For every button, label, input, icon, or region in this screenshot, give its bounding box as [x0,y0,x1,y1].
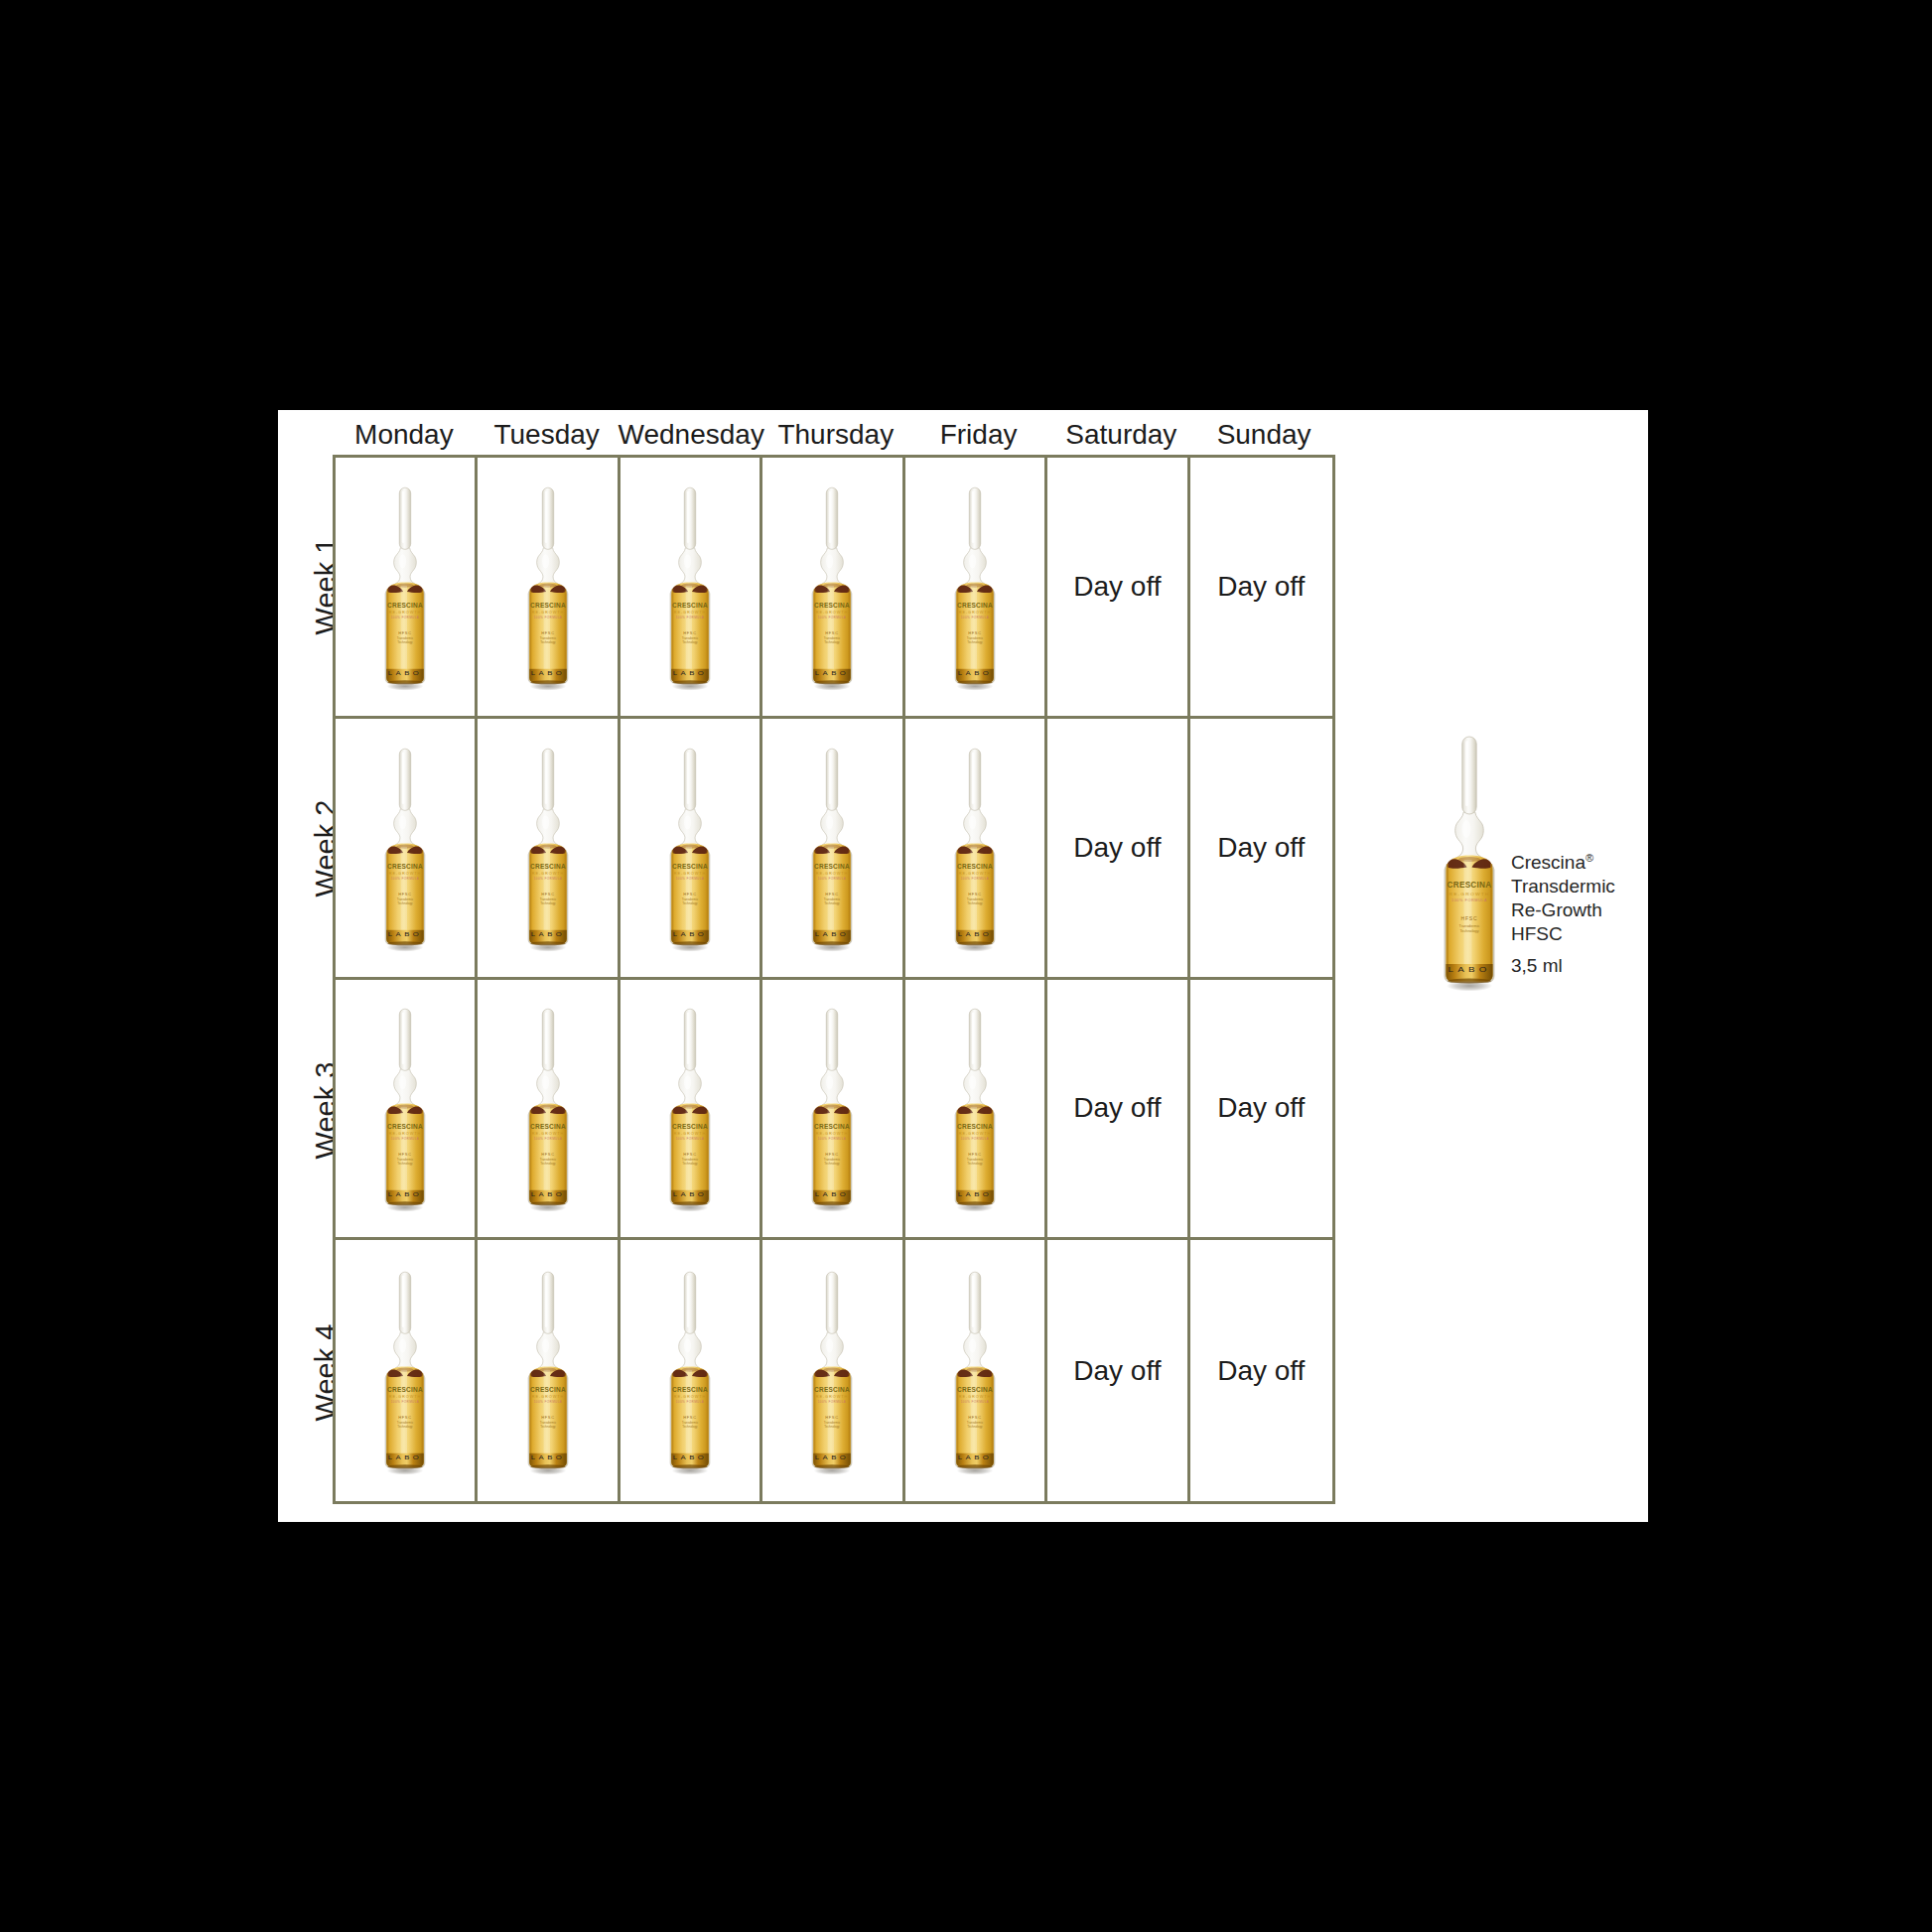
ampoule-range-text: RE-GROWTH [674,872,707,876]
base-rim [957,941,992,945]
ampoule-tech1-text: HFSC [1461,915,1478,921]
ampoule-range-text: RE-GROWTH [816,1133,849,1137]
ampoule-tip [1462,737,1476,814]
ampoule-tech3-text: Technology [682,640,698,644]
ampoule-formula-text: 100% FORMULA [391,1137,420,1141]
cell-week4-monday: CRESCINA RE-GROWTH 100% FORMULA HFSC Tra… [336,1240,478,1501]
ampoule-tech2-text: Transdermic [682,636,699,640]
ampoule-tech2-text: Transdermic [539,897,556,900]
ampoule-formula-text: 100% FORMULA [961,616,990,620]
ampoule-tip [827,1272,838,1333]
tip-highlight [687,1013,690,1065]
ampoule-range-text: RE-GROWTH [531,1133,564,1137]
day-off-label: Day off [1073,1357,1161,1385]
bulge-highlight [542,815,549,829]
ampoule-tech1-text: HFSC [826,1414,839,1419]
base-rim [673,941,708,945]
bulge-highlight [684,1076,691,1090]
cell-week4-friday: CRESCINA RE-GROWTH 100% FORMULA HFSC Tra… [905,1240,1047,1501]
ampoule-brand-text: CRESCINA [815,1385,851,1394]
ampoule-range-text: RE-GROWTH [531,1395,564,1399]
ampoule-maker-text: LABO [815,1452,849,1459]
tip-highlight [402,752,405,804]
bulge-highlight [827,554,834,568]
ampoule-tech1-text: HFSC [541,891,554,896]
ampoule-brand-text: CRESCINA [672,601,708,610]
ampoule-tip [969,749,980,810]
ampoule-brand-text: CRESCINA [530,1123,566,1132]
cell-week2-saturday: Day off [1047,719,1189,980]
day-header-sunday: Sunday [1192,410,1335,452]
ampoule-brand-text: CRESCINA [957,601,993,610]
legend-ampoule-slot: CRESCINA RE-GROWTH 100% FORMULA HFSC Tra… [1440,733,1499,997]
tip-highlight [972,490,975,543]
ampoule-formula-text: 100% FORMULA [533,1400,562,1404]
ampoule-brand-text: CRESCINA [387,1385,423,1394]
tip-highlight [544,490,547,543]
ampoule-tip [542,1010,553,1071]
base-rim [673,680,708,684]
ampoule-tech3-text: Technology [398,640,414,644]
bulge-highlight [399,554,406,568]
ampoule-tech2-text: Transdermic [967,1420,984,1424]
ampoule-formula-text: 100% FORMULA [676,877,705,881]
ampoule-tech3-text: Technology [825,1425,841,1429]
tip-highlight [544,1275,547,1327]
ampoule-maker-text: LABO [530,1190,564,1197]
day-header-tuesday: Tuesday [476,410,619,452]
letterboxed-background: MondayTuesdayWednesdayThursdayFridaySatu… [0,0,1932,1932]
base-rim [815,1202,850,1206]
base-rim [957,680,992,684]
ampoule-maker-text: LABO [388,1452,422,1459]
ampoule-tech2-text: Transdermic [397,1420,414,1424]
ampoule-tech2-text: Transdermic [967,636,984,640]
crescina-ampoule-image: CRESCINA RE-GROWTH 100% FORMULA HFSC Tra… [666,484,714,695]
ampoule-tech1-text: HFSC [683,891,696,896]
ampoule-brand-text: CRESCINA [815,862,851,871]
bulge-highlight [684,815,691,829]
ampoule-tech2-text: Transdermic [967,1158,984,1162]
ampoule-tech3-text: Technology [682,901,698,905]
ampoule-range-text: RE-GROWTH [674,1133,707,1137]
cell-week4-tuesday: CRESCINA RE-GROWTH 100% FORMULA HFSC Tra… [478,1240,620,1501]
ampoule-formula-text: 100% FORMULA [818,877,847,881]
crescina-ampoule-image: CRESCINA RE-GROWTH 100% FORMULA HFSC Tra… [808,1006,856,1216]
ampoule-tech3-text: Technology [825,640,841,644]
ampoule-brand-text: CRESCINA [387,601,423,610]
ampoule-maker-text: LABO [673,1452,707,1459]
ampoule-tip [827,487,838,549]
ampoule-tip [969,1272,980,1333]
ampoule-formula-text: 100% FORMULA [818,1400,847,1404]
ampoule-tip [399,487,410,549]
ampoule-range-text: RE-GROWTH [959,872,992,876]
ampoule-tip [399,1010,410,1071]
ampoule-maker-text: LABO [530,669,564,676]
day-off-label: Day off [1073,1094,1161,1122]
ampoule-tech1-text: HFSC [399,630,412,635]
ampoule-tip [684,749,695,810]
base-rim [388,941,423,945]
ampoule-tip [399,749,410,810]
base-rim [673,1202,708,1206]
ampoule-brand-text: CRESCINA [815,1123,851,1132]
product-name-line: Crescina® [1511,851,1729,875]
ampoule-tech2-text: Transdermic [967,897,984,900]
bulge-highlight [969,1076,976,1090]
ampoule-brand-text: CRESCINA [672,1385,708,1394]
cell-week2-friday: CRESCINA RE-GROWTH 100% FORMULA HFSC Tra… [905,719,1047,980]
cell-week3-wednesday: CRESCINA RE-GROWTH 100% FORMULA HFSC Tra… [621,980,762,1241]
crescina-ampoule-image: CRESCINA RE-GROWTH 100% FORMULA HFSC Tra… [524,1269,572,1479]
bulge-highlight [969,815,976,829]
ampoule-tech1-text: HFSC [399,1152,412,1157]
schedule-card: MondayTuesdayWednesdayThursdayFridaySatu… [278,410,1648,1522]
day-off-label: Day off [1073,834,1161,862]
ampoule-range-text: RE-GROWTH [816,872,849,876]
crescina-ampoule-image: CRESCINA RE-GROWTH 100% FORMULA HFSC Tra… [808,746,856,956]
ampoule-tech1-text: HFSC [968,630,981,635]
ampoule-tech2-text: Transdermic [539,636,556,640]
tip-highlight [972,1013,975,1065]
bulge-highlight [399,815,406,829]
ampoule-maker-text: LABO [958,929,992,936]
bulge-highlight [827,1338,834,1352]
cell-week1-wednesday: CRESCINA RE-GROWTH 100% FORMULA HFSC Tra… [621,458,762,719]
base-rim [815,1464,850,1468]
product-info-block: Crescina® Transdermic Re-Growth HFSC 3,5… [1511,851,1729,978]
ampoule-maker-text: LABO [815,929,849,936]
tip-highlight [972,1275,975,1327]
cell-week1-monday: CRESCINA RE-GROWTH 100% FORMULA HFSC Tra… [336,458,478,719]
ampoule-tech1-text: HFSC [683,630,696,635]
cell-week2-sunday: Day off [1190,719,1332,980]
bulge-highlight [969,1338,976,1352]
ampoule-formula-text: 100% FORMULA [818,616,847,620]
ampoule-maker-text: LABO [673,1190,707,1197]
ampoule-range-text: RE-GROWTH [816,611,849,615]
calendar-grid: CRESCINA RE-GROWTH 100% FORMULA HFSC Tra… [333,455,1335,1504]
ampoule-maker-text: LABO [958,1452,992,1459]
ampoule-tip [684,487,695,549]
base-rim [815,680,850,684]
ampoule-tech1-text: HFSC [968,891,981,896]
cell-week3-saturday: Day off [1047,980,1189,1241]
cell-week1-saturday: Day off [1047,458,1189,719]
day-header-wednesday: Wednesday [619,410,764,452]
ampoule-brand-text: CRESCINA [957,1123,993,1132]
tip-highlight [544,1013,547,1065]
ampoule-range-text: RE-GROWTH [389,872,422,876]
ampoule-formula-text: 100% FORMULA [533,1137,562,1141]
tip-highlight [972,752,975,804]
ampoule-tip [542,1272,553,1333]
tip-highlight [1465,741,1468,806]
ampoule-tech2-text: Transdermic [824,897,841,900]
ampoule-range-text: RE-GROWTH [389,1395,422,1399]
ampoule-tech3-text: Technology [540,1163,556,1167]
ampoule-brand-text: CRESCINA [387,862,423,871]
bulge-highlight [542,1338,549,1352]
ampoule-brand-text: CRESCINA [957,862,993,871]
ampoule-range-text: RE-GROWTH [531,872,564,876]
crescina-ampoule-image: CRESCINA RE-GROWTH 100% FORMULA HFSC Tra… [808,1269,856,1479]
bulge-highlight [542,1076,549,1090]
ampoule-brand-text: CRESCINA [387,1123,423,1132]
ampoule-brand-text: CRESCINA [957,1385,993,1394]
crescina-ampoule-image: CRESCINA RE-GROWTH 100% FORMULA HFSC Tra… [951,746,999,956]
ampoule-maker-text: LABO [530,929,564,936]
ampoule-tip [542,749,553,810]
ampoule-tech3-text: Technology [540,640,556,644]
ampoule-tech3-text: Technology [540,901,556,905]
tip-highlight [402,490,405,543]
ampoule-tech2-text: Transdermic [397,897,414,900]
crescina-ampoule-image: CRESCINA RE-GROWTH 100% FORMULA HFSC Tra… [381,484,429,695]
base-rim [388,680,423,684]
ampoule-tech1-text: HFSC [541,630,554,635]
bulge-highlight [827,1076,834,1090]
ampoule-tech1-text: HFSC [541,1414,554,1419]
ampoule-tech2-text: Transdermic [397,636,414,640]
ampoule-brand-text: CRESCINA [1448,880,1492,890]
day-off-label: Day off [1217,1094,1305,1122]
tip-highlight [829,1013,832,1065]
base-rim [530,1202,565,1206]
ampoule-range-text: RE-GROWTH [389,611,422,615]
day-header-monday: Monday [333,410,476,452]
ampoule-tech1-text: HFSC [399,1414,412,1419]
ampoule-tip [684,1010,695,1071]
tip-highlight [402,1275,405,1327]
cell-week1-tuesday: CRESCINA RE-GROWTH 100% FORMULA HFSC Tra… [478,458,620,719]
ampoule-maker-text: LABO [530,1452,564,1459]
cell-week4-wednesday: CRESCINA RE-GROWTH 100% FORMULA HFSC Tra… [621,1240,762,1501]
ampoule-maker-text: LABO [815,669,849,676]
day-off-label: Day off [1073,573,1161,601]
cell-week3-tuesday: CRESCINA RE-GROWTH 100% FORMULA HFSC Tra… [478,980,620,1241]
ampoule-tech1-text: HFSC [826,891,839,896]
ampoule-range-text: RE-GROWTH [959,1133,992,1137]
ampoule-tech2-text: Transdermic [824,636,841,640]
ampoule-tech2-text: Transdermic [397,1158,414,1162]
cell-week3-friday: CRESCINA RE-GROWTH 100% FORMULA HFSC Tra… [905,980,1047,1241]
tip-highlight [687,752,690,804]
ampoule-tech1-text: HFSC [826,1152,839,1157]
ampoule-maker-text: LABO [815,1190,849,1197]
ampoule-brand-text: CRESCINA [530,862,566,871]
ampoule-tech1-text: HFSC [683,1152,696,1157]
crescina-ampoule-image: CRESCINA RE-GROWTH 100% FORMULA HFSC Tra… [666,1006,714,1216]
product-line-regrowth: Re-Growth [1511,898,1729,922]
ampoule-tech1-text: HFSC [399,891,412,896]
product-line-hfsc: HFSC [1511,922,1729,946]
ampoule-tech2-text: Transdermic [682,1420,699,1424]
base-rim [530,1464,565,1468]
crescina-ampoule-image: CRESCINA RE-GROWTH 100% FORMULA HFSC Tra… [524,1006,572,1216]
cell-week3-thursday: CRESCINA RE-GROWTH 100% FORMULA HFSC Tra… [762,980,904,1241]
ampoule-tech3-text: Technology [967,901,983,905]
tip-highlight [829,1275,832,1327]
ampoule-tech3-text: Technology [825,901,841,905]
cell-week4-sunday: Day off [1190,1240,1332,1501]
bulge-highlight [684,554,691,568]
ampoule-range-text: RE-GROWTH [959,611,992,615]
day-off-label: Day off [1217,834,1305,862]
ampoule-maker-text: LABO [388,669,422,676]
product-line-transdermic: Transdermic [1511,875,1729,898]
ampoule-range-text: RE-GROWTH [816,1395,849,1399]
ampoule-tech1-text: HFSC [968,1152,981,1157]
ampoule-tip [969,487,980,549]
ampoule-brand-text: CRESCINA [530,601,566,610]
week-label-column: Week 1Week 2Week 3Week 4 [278,455,333,1504]
ampoule-tech3-text: Technology [1459,929,1478,933]
cell-week1-thursday: CRESCINA RE-GROWTH 100% FORMULA HFSC Tra… [762,458,904,719]
ampoule-tech2-text: Transdermic [682,897,699,900]
cell-week1-sunday: Day off [1190,458,1332,719]
ampoule-tech3-text: Technology [967,1425,983,1429]
ampoule-maker-text: LABO [958,1190,992,1197]
ampoule-formula-text: 100% FORMULA [676,1400,705,1404]
ampoule-tip [399,1272,410,1333]
base-rim [815,941,850,945]
day-header-saturday: Saturday [1049,410,1192,452]
ampoule-tech1-text: HFSC [541,1152,554,1157]
crescina-ampoule-image: CRESCINA RE-GROWTH 100% FORMULA HFSC Tra… [381,746,429,956]
ampoule-formula-text: 100% FORMULA [391,877,420,881]
base-rim [957,1464,992,1468]
ampoule-tech3-text: Technology [398,1163,414,1167]
day-off-label: Day off [1217,1357,1305,1385]
crescina-ampoule-image: CRESCINA RE-GROWTH 100% FORMULA HFSC Tra… [524,746,572,956]
cell-week2-monday: CRESCINA RE-GROWTH 100% FORMULA HFSC Tra… [336,719,478,980]
base-rim [530,680,565,684]
tip-highlight [402,1013,405,1065]
ampoule-tech2-text: Transdermic [539,1420,556,1424]
bulge-highlight [969,554,976,568]
ampoule-maker-text: LABO [958,669,992,676]
product-volume: 3,5 ml [1511,954,1729,978]
ampoule-maker-text: LABO [388,929,422,936]
bulge-highlight [684,1338,691,1352]
ampoule-maker-text: LABO [673,669,707,676]
ampoule-brand-text: CRESCINA [815,601,851,610]
ampoule-range-text: RE-GROWTH [674,1395,707,1399]
base-rim [530,941,565,945]
cell-week1-friday: CRESCINA RE-GROWTH 100% FORMULA HFSC Tra… [905,458,1047,719]
ampoule-formula-text: 100% FORMULA [961,1400,990,1404]
cell-week3-monday: CRESCINA RE-GROWTH 100% FORMULA HFSC Tra… [336,980,478,1241]
bulge-highlight [399,1338,406,1352]
crescina-ampoule-image: CRESCINA RE-GROWTH 100% FORMULA HFSC Tra… [1440,733,1499,997]
bulge-highlight [1462,820,1471,838]
ampoule-range-text: RE-GROWTH [1449,892,1490,897]
ampoule-tip [684,1272,695,1333]
base-rim [957,1202,992,1206]
cell-week3-sunday: Day off [1190,980,1332,1241]
product-name: Crescina [1511,852,1586,873]
registered-trademark: ® [1586,852,1593,864]
day-header-friday: Friday [907,410,1050,452]
tip-highlight [687,490,690,543]
ampoule-tech2-text: Transdermic [824,1420,841,1424]
ampoule-formula-text: 100% FORMULA [818,1137,847,1141]
ampoule-formula-text: 100% FORMULA [676,616,705,620]
ampoule-formula-text: 100% FORMULA [961,877,990,881]
ampoule-maker-text: LABO [1449,965,1491,974]
crescina-ampoule-image: CRESCINA RE-GROWTH 100% FORMULA HFSC Tra… [951,484,999,695]
ampoule-tech3-text: Technology [825,1163,841,1167]
ampoule-tech1-text: HFSC [826,630,839,635]
ampoule-tip [827,1010,838,1071]
bulge-highlight [399,1076,406,1090]
ampoule-tech3-text: Technology [967,1163,983,1167]
ampoule-formula-text: 100% FORMULA [391,1400,420,1404]
tip-highlight [829,752,832,804]
crescina-ampoule-image: CRESCINA RE-GROWTH 100% FORMULA HFSC Tra… [666,1269,714,1479]
bulge-highlight [827,815,834,829]
ampoule-maker-text: LABO [673,929,707,936]
ampoule-tech2-text: Transdermic [682,1158,699,1162]
ampoule-range-text: RE-GROWTH [674,611,707,615]
day-header-row: MondayTuesdayWednesdayThursdayFridaySatu… [333,410,1335,452]
ampoule-formula-text: 100% FORMULA [533,877,562,881]
ampoule-tech3-text: Technology [682,1425,698,1429]
bulge-highlight [542,554,549,568]
ampoule-formula-text: 100% FORMULA [533,616,562,620]
ampoule-tech3-text: Technology [540,1425,556,1429]
ampoule-tech3-text: Technology [398,1425,414,1429]
crescina-ampoule-image: CRESCINA RE-GROWTH 100% FORMULA HFSC Tra… [381,1269,429,1479]
ampoule-maker-text: LABO [388,1190,422,1197]
cell-week4-thursday: CRESCINA RE-GROWTH 100% FORMULA HFSC Tra… [762,1240,904,1501]
day-header-thursday: Thursday [764,410,907,452]
tip-highlight [687,1275,690,1327]
ampoule-brand-text: CRESCINA [672,1123,708,1132]
ampoule-tech2-text: Transdermic [824,1158,841,1162]
ampoule-formula-text: 100% FORMULA [1451,898,1487,902]
ampoule-tech2-text: Transdermic [539,1158,556,1162]
cell-week2-thursday: CRESCINA RE-GROWTH 100% FORMULA HFSC Tra… [762,719,904,980]
cell-week2-wednesday: CRESCINA RE-GROWTH 100% FORMULA HFSC Tra… [621,719,762,980]
ampoule-formula-text: 100% FORMULA [391,616,420,620]
ampoule-formula-text: 100% FORMULA [961,1137,990,1141]
base-rim [388,1464,423,1468]
ampoule-tip [969,1010,980,1071]
ampoule-tech1-text: HFSC [968,1414,981,1419]
ampoule-tech2-text: Transdermic [1459,924,1480,928]
ampoule-formula-text: 100% FORMULA [676,1137,705,1141]
crescina-ampoule-image: CRESCINA RE-GROWTH 100% FORMULA HFSC Tra… [951,1006,999,1216]
ampoule-tech3-text: Technology [398,901,414,905]
base-rim [1448,979,1491,984]
ampoule-tech1-text: HFSC [683,1414,696,1419]
tip-highlight [829,490,832,543]
cell-week4-saturday: Day off [1047,1240,1189,1501]
base-rim [673,1464,708,1468]
ampoule-tip [827,749,838,810]
ampoule-range-text: RE-GROWTH [531,611,564,615]
base-rim [388,1202,423,1206]
ampoule-brand-text: CRESCINA [672,862,708,871]
ampoule-brand-text: CRESCINA [530,1385,566,1394]
ampoule-range-text: RE-GROWTH [959,1395,992,1399]
crescina-ampoule-image: CRESCINA RE-GROWTH 100% FORMULA HFSC Tra… [951,1269,999,1479]
ampoule-range-text: RE-GROWTH [389,1133,422,1137]
crescina-ampoule-image: CRESCINA RE-GROWTH 100% FORMULA HFSC Tra… [381,1006,429,1216]
